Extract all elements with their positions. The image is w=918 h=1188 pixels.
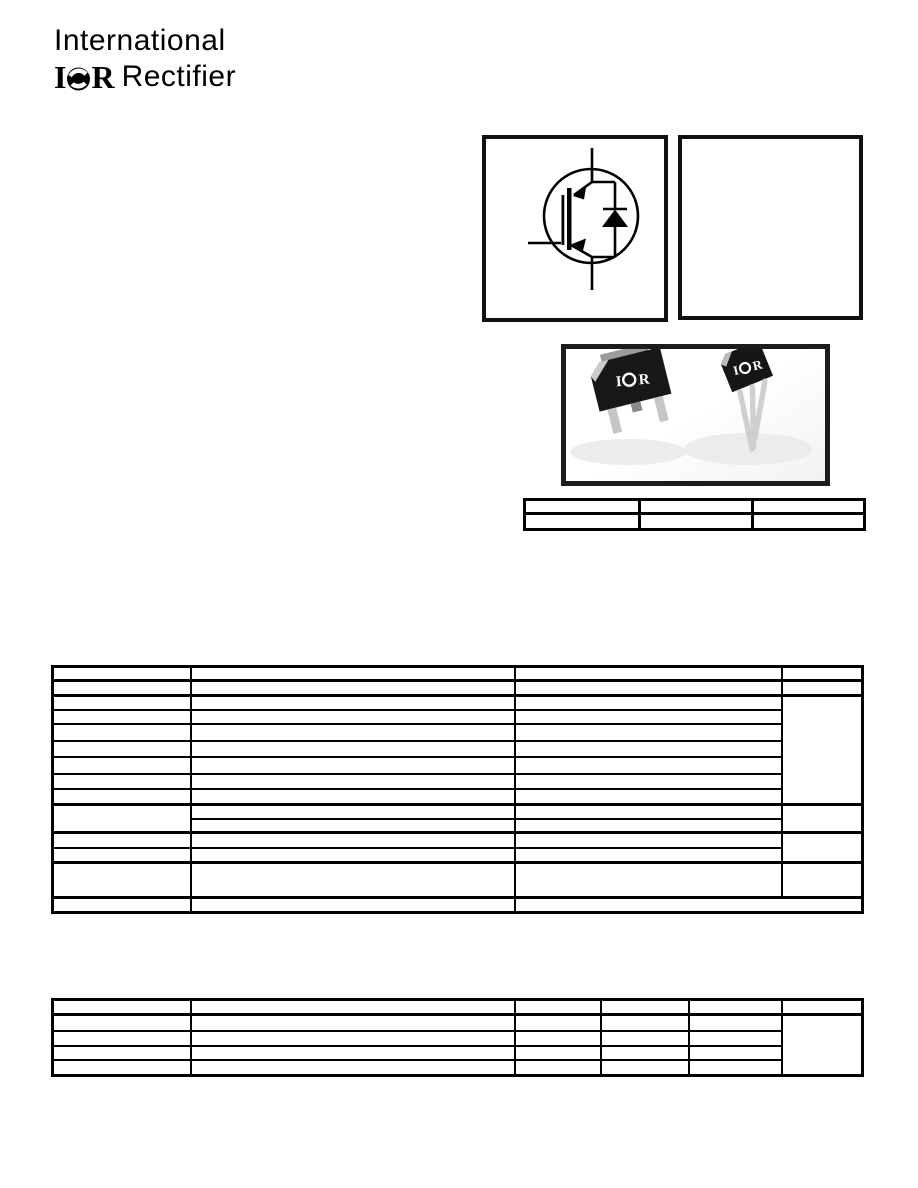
package-photo-box: I R I R: [561, 344, 830, 486]
blank-table-cell: [53, 1031, 191, 1046]
logo-international-text: International: [54, 26, 236, 56]
blank-table-cell: [753, 514, 865, 530]
device-symbol-box: [482, 135, 668, 322]
table-row: [53, 774, 863, 789]
blank-table-cell: [191, 863, 515, 898]
blank-table-cell: [53, 741, 191, 757]
blank-table-cell: [191, 1031, 515, 1046]
ordering-info-table: [523, 498, 866, 531]
blank-table-cell: [191, 848, 515, 863]
blank-table-cell: [191, 667, 515, 681]
blank-table-cell: [640, 514, 753, 530]
blank-table-cell: [53, 898, 191, 913]
maximum-ratings-table: [51, 665, 864, 914]
dpak-shadow: [570, 439, 686, 465]
blank-table-cell: [515, 848, 782, 863]
blank-table-cell: [601, 1060, 689, 1076]
blank-table-cell: [53, 1046, 191, 1060]
blank-table-cell: [515, 789, 782, 805]
blank-table-cell: [191, 1000, 515, 1015]
blank-table-cell: [782, 681, 863, 696]
part-number-box: [678, 135, 863, 320]
blank-table-cell: [689, 1060, 782, 1076]
blank-table-cell: [53, 667, 191, 681]
blank-table-cell: [515, 1015, 601, 1031]
blank-table-cell: [53, 848, 191, 863]
blank-table-cell: [53, 681, 191, 696]
blank-table-cell: [191, 1060, 515, 1076]
blank-table-cell: [53, 805, 191, 833]
ir-logo: International I R Rectifier: [54, 26, 236, 93]
blank-table-cell: [515, 863, 782, 898]
blank-table-cell: [191, 741, 515, 757]
blank-table-cell: [191, 805, 515, 819]
blank-table-cell: [782, 1015, 863, 1076]
table-row: [53, 863, 863, 898]
dpak-package-image: I R: [586, 349, 677, 436]
blank-table-cell: [53, 724, 191, 741]
blank-table-cell: [53, 757, 191, 774]
table-row: [53, 710, 863, 724]
blank-table-cell: [689, 1031, 782, 1046]
blank-table-cell: [53, 1060, 191, 1076]
table-row: [53, 898, 863, 913]
blank-table-cell: [525, 500, 640, 514]
blank-table-cell: [191, 681, 515, 696]
blank-table-cell: [515, 1000, 601, 1015]
blank-table-cell: [191, 710, 515, 724]
blank-table-cell: [515, 819, 782, 833]
blank-table-cell: [782, 805, 863, 833]
table-row: [525, 500, 865, 514]
blank-table-cell: [515, 1046, 601, 1060]
table-row: [53, 1015, 863, 1031]
blank-table-cell: [191, 819, 515, 833]
blank-table-cell: [515, 681, 782, 696]
blank-table-cell: [515, 833, 782, 848]
blank-table-cell: [601, 1031, 689, 1046]
blank-table-cell: [515, 667, 782, 681]
table-row: [53, 696, 863, 710]
blank-table-cell: [191, 724, 515, 741]
datasheet-page: { "page": { "background": "#ffffff", "in…: [0, 0, 918, 1188]
thermal-resistance-table: [51, 998, 864, 1077]
blank-table-cell: [515, 757, 782, 774]
table-header-row: [53, 667, 863, 681]
blank-table-cell: [782, 833, 863, 863]
blank-table-cell: [53, 789, 191, 805]
blank-table-cell: [191, 898, 515, 913]
blank-table-cell: [601, 1015, 689, 1031]
blank-table-cell: [191, 833, 515, 848]
table-row: [53, 833, 863, 848]
blank-table-cell: [782, 1000, 863, 1015]
blank-table-cell: [515, 696, 782, 710]
blank-table-cell: [53, 833, 191, 848]
blank-table-cell: [640, 500, 753, 514]
igbt-symbol-icon: [486, 139, 664, 318]
table-row: [53, 1046, 863, 1060]
blank-table-cell: [515, 774, 782, 789]
package-photos: I R I R: [566, 349, 825, 481]
table-row: [53, 681, 863, 696]
table-row: [53, 848, 863, 863]
blank-table-cell: [689, 1046, 782, 1060]
table-row: [53, 789, 863, 805]
blank-table-cell: [515, 805, 782, 819]
table-row: [53, 724, 863, 741]
blank-table-cell: [191, 696, 515, 710]
blank-table-cell: [191, 1046, 515, 1060]
blank-table-cell: [53, 710, 191, 724]
blank-table-cell: [601, 1046, 689, 1060]
table-row: [53, 1031, 863, 1046]
blank-table-cell: [191, 774, 515, 789]
brand-letter-r: R: [91, 61, 114, 93]
blank-table-cell: [782, 863, 863, 898]
blank-table-cell: [53, 696, 191, 710]
logo-second-line: I R Rectifier: [54, 61, 236, 93]
ir-globe-icon: [65, 65, 92, 92]
table-row: [53, 757, 863, 774]
logo-rectifier-text: Rectifier: [122, 60, 237, 94]
blank-table-cell: [191, 1015, 515, 1031]
blank-table-cell: [53, 1015, 191, 1031]
blank-table-cell: [53, 774, 191, 789]
blank-table-cell: [782, 667, 863, 681]
blank-table-cell: [191, 789, 515, 805]
blank-table-cell: [515, 1060, 601, 1076]
table-row: [53, 1060, 863, 1076]
blank-table-cell: [53, 863, 191, 898]
dpak-logo-r: R: [638, 371, 650, 388]
table-row: [53, 741, 863, 757]
blank-table-cell: [753, 500, 865, 514]
blank-table-cell: [515, 724, 782, 741]
blank-table-cell: [191, 757, 515, 774]
blank-table-cell: [53, 1000, 191, 1015]
blank-table-cell: [689, 1015, 782, 1031]
blank-table-cell: [515, 1031, 601, 1046]
table-header-row: [53, 1000, 863, 1015]
blank-table-cell: [515, 710, 782, 724]
blank-table-cell: [525, 514, 640, 530]
table-row: [53, 805, 863, 819]
blank-table-cell: [689, 1000, 782, 1015]
blank-table-cell: [515, 741, 782, 757]
blank-table-cell: [601, 1000, 689, 1015]
blank-table-cell: [515, 898, 863, 913]
blank-table-cell: [782, 696, 863, 805]
table-row: [525, 514, 865, 530]
